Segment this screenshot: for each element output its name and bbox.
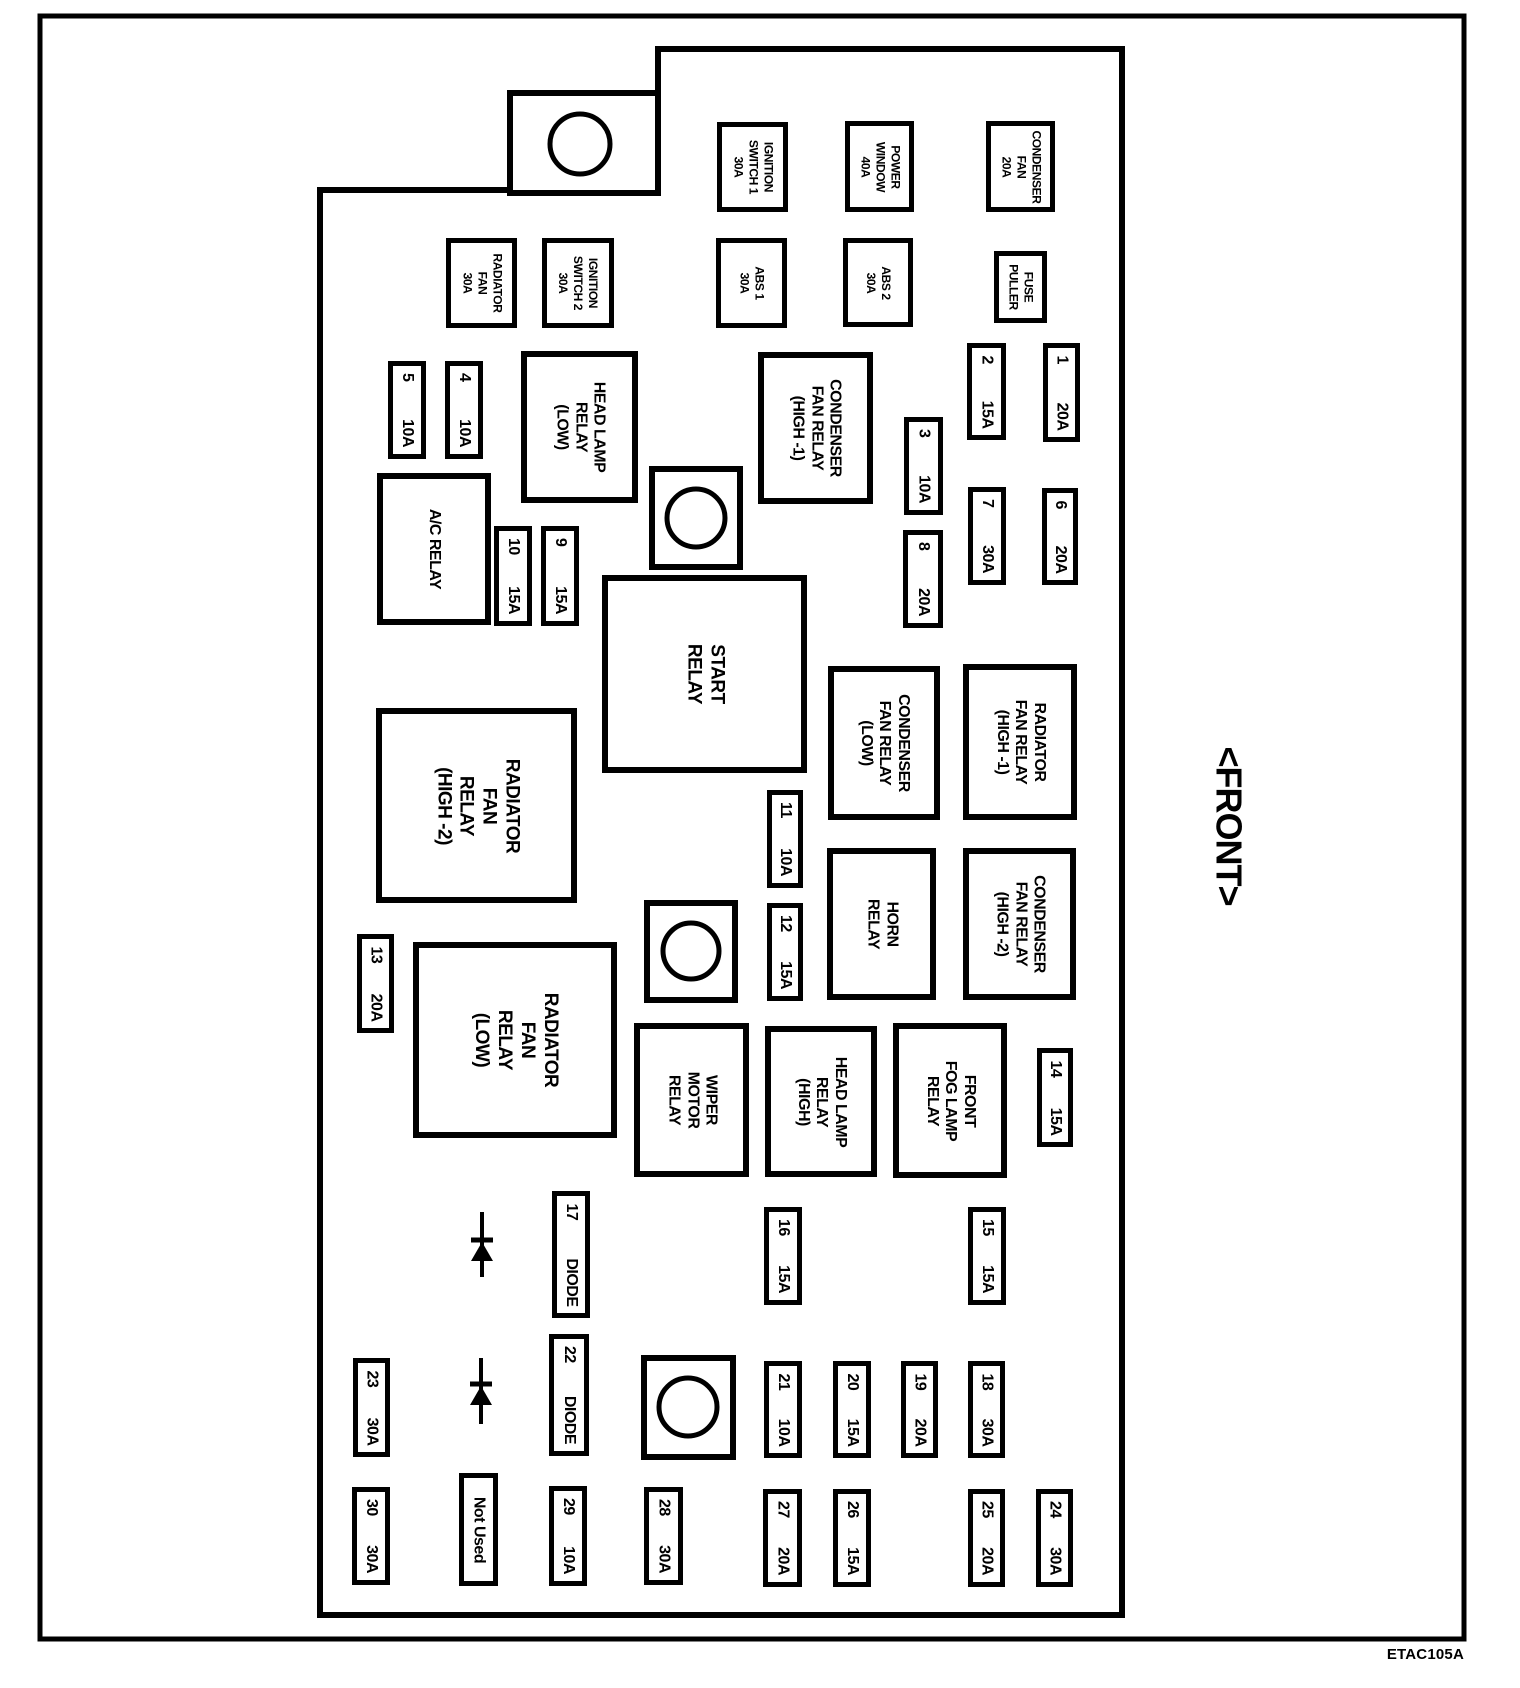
relay-label: (HIGH -2) xyxy=(992,892,1010,957)
fuse-label: 23 xyxy=(363,1370,381,1387)
fuse-label: 12 xyxy=(776,915,794,932)
component-label: RADIATOR xyxy=(489,253,504,312)
fuse-label: 26 xyxy=(843,1501,861,1518)
relay-label: (HIGH -1) xyxy=(992,710,1010,775)
fuse-label: 29 xyxy=(559,1498,577,1515)
component-label: FAN xyxy=(474,272,489,295)
component-label: 20A xyxy=(998,156,1013,177)
fuse-label: 30A xyxy=(978,545,996,573)
fuse-label: 15A xyxy=(776,961,794,989)
fuse-label: 20 xyxy=(843,1373,861,1390)
fuse-26: 2615A xyxy=(833,1489,871,1587)
fuse-label: 5 xyxy=(398,373,416,381)
fuse-label: 15A xyxy=(843,1547,861,1575)
relay-label: RELAY xyxy=(492,1010,515,1070)
relay-label: RELAY xyxy=(922,1075,940,1125)
fuse-label: 22 xyxy=(560,1346,578,1363)
fuse-6: 620A xyxy=(1042,488,1078,585)
fuse-not-used: Not Used xyxy=(459,1473,498,1586)
fuse-label: 15A xyxy=(774,1265,792,1293)
fuse-label: 15 xyxy=(978,1219,996,1236)
fuse-label: 10A xyxy=(776,848,794,876)
fuse-16: 1615A xyxy=(764,1207,802,1305)
fuse-label: 15A xyxy=(551,586,569,614)
fuse-4: 410A xyxy=(445,361,483,459)
fuse-label: 15A xyxy=(504,586,522,614)
component-abs-1: ABS 130A xyxy=(716,238,787,328)
fuse-label: 20A xyxy=(1051,545,1069,573)
fuse-label: 20A xyxy=(1053,402,1071,430)
relay-label: HEAD LAMP xyxy=(830,1056,848,1147)
relay-label: WIPER xyxy=(701,1075,719,1125)
relay-label: HEAD LAMP xyxy=(589,382,607,473)
relay-label: FAN xyxy=(515,1022,538,1059)
fuse-label: 19 xyxy=(911,1373,929,1390)
component-ignition-switch-1: IGNITIONSWITCH 130A xyxy=(717,122,788,212)
fuse-label: 25 xyxy=(978,1501,996,1518)
fuse-label: 15A xyxy=(843,1418,861,1446)
fuse-label: 30A xyxy=(1046,1547,1064,1575)
fuse-label: 28 xyxy=(655,1499,673,1516)
relay-label: RADIATOR xyxy=(538,993,561,1088)
component-power-window: POWERWINDOW40A xyxy=(845,121,914,212)
relay-head-lamp-relay-low: HEAD LAMPRELAY(LOW) xyxy=(521,351,638,503)
component-label: 30A xyxy=(863,272,878,293)
fuse-12: 1215A xyxy=(767,903,803,1001)
front-label-text: <FRONT> xyxy=(1208,746,1250,905)
fuse-13: 1320A xyxy=(357,934,394,1033)
fuse-9: 915A xyxy=(541,526,579,626)
relay-label: FRONT xyxy=(959,1074,977,1127)
fuse-label: 30A xyxy=(363,1417,381,1445)
relay-label: (HIGH) xyxy=(793,1078,811,1126)
fuse-8: 820A xyxy=(903,530,943,628)
relay-label: CONDENSER xyxy=(893,694,911,792)
fuse-2: 215A xyxy=(967,343,1006,440)
fuse-label: 4 xyxy=(455,373,473,381)
fuse-30: 3030A xyxy=(352,1487,390,1585)
fuse-1: 120A xyxy=(1043,343,1080,442)
relay-horn-relay: HORNRELAY xyxy=(827,848,936,1000)
fuse-label: 20A xyxy=(911,1418,929,1446)
relay-radiator-fan-relay-high-2: RADIATORFANRELAY(HIGH -2) xyxy=(376,708,577,903)
relay-condenser-fan-relay-high-2: CONDENSERFAN RELAY(HIGH -2) xyxy=(963,848,1076,1000)
component-label: IGNITION xyxy=(586,258,601,308)
fuse-22: 22DIODE xyxy=(549,1334,589,1456)
fuse-27: 2720A xyxy=(763,1489,802,1587)
fuse-label: 10A xyxy=(455,419,473,447)
fuse-label: 30 xyxy=(362,1499,380,1516)
diode-symbol-2 xyxy=(470,1386,492,1405)
relay-label: CONDENSER xyxy=(1029,875,1047,973)
component-label: PULLER xyxy=(1006,264,1021,310)
relay-label: (LOW) xyxy=(856,720,874,765)
component-label: POWER xyxy=(887,145,902,188)
fuse-label: DIODE xyxy=(560,1396,578,1444)
relay-condenser-fan-relay-high-1: CONDENSERFAN RELAY(HIGH -1) xyxy=(758,352,873,504)
component-label: FAN xyxy=(1013,155,1028,178)
diode-symbol-1 xyxy=(471,1242,493,1261)
fuse-label: 8 xyxy=(914,542,932,550)
figure-code: ETAC105A xyxy=(1320,1646,1464,1663)
fuse-label: 3 xyxy=(915,429,933,437)
component-ignition-switch-2: IGNITIONSWITCH 230A xyxy=(542,238,614,328)
fuse-label: 6 xyxy=(1051,500,1069,508)
relay-start-relay: STARTRELAY xyxy=(602,575,807,773)
mounting-tab-hole-frame xyxy=(510,93,658,193)
relay-label: FAN RELAY xyxy=(1010,882,1028,967)
component-label: ABS 2 xyxy=(878,266,893,299)
component-abs-2: ABS 230A xyxy=(843,238,913,327)
relay-label: FAN xyxy=(477,787,500,824)
component-label: FUSE xyxy=(1021,272,1036,302)
component-label: 30A xyxy=(556,273,571,294)
relay-label: RELAY xyxy=(664,1075,682,1125)
fuse-17: 17DIODE xyxy=(552,1191,590,1318)
relay-label: (LOW) xyxy=(469,1013,492,1067)
relay-label: MOTOR xyxy=(682,1072,700,1129)
component-label: SWITCH 2 xyxy=(571,256,586,310)
component-label: 40A xyxy=(857,156,872,177)
component-label: CONDENSER xyxy=(1028,130,1043,203)
relay-label: RADIATOR xyxy=(499,758,522,853)
fuse-label: DIODE xyxy=(562,1258,580,1306)
fuse-label: 11 xyxy=(776,802,794,818)
relay-radiator-fan-relay-low: RADIATORFANRELAY(LOW) xyxy=(413,942,617,1138)
relay-label: FOG LAMP xyxy=(941,1060,959,1140)
fuse-label: 14 xyxy=(1046,1060,1064,1077)
fuse-label: 10A xyxy=(915,475,933,503)
fuse-label: 10A xyxy=(398,419,416,447)
fuse-7: 730A xyxy=(968,487,1006,585)
fuse-29: 2910A xyxy=(549,1486,587,1586)
fuse-label: 10A xyxy=(774,1418,792,1446)
relay-label: FAN RELAY xyxy=(806,386,824,471)
fuse-24: 2430A xyxy=(1036,1489,1073,1587)
fuse-label: 2 xyxy=(978,355,996,363)
fuse-label: 27 xyxy=(774,1501,792,1518)
fuse-label: 15A xyxy=(978,1265,996,1293)
relay-condenser-fan-relay-low: CONDENSERFAN RELAY(LOW) xyxy=(828,666,940,820)
relay-label: HORN xyxy=(882,901,900,946)
component-radiator-fan: RADIATORFAN30A xyxy=(446,238,517,328)
fuse-label: 7 xyxy=(978,499,996,507)
fuse-11: 1110A xyxy=(767,790,803,888)
relay-label: CONDENSER xyxy=(825,379,843,477)
fuse-label: 15A xyxy=(978,400,996,428)
component-label: 30A xyxy=(459,273,474,294)
component-fuse-puller: FUSEPULLER xyxy=(994,251,1047,323)
mounting-hole-2-frame xyxy=(647,903,735,1000)
fuse-18: 1830A xyxy=(968,1361,1005,1458)
fuse-3: 310A xyxy=(904,417,943,515)
fuse-14: 1415A xyxy=(1037,1048,1073,1147)
fuse-box-diagram-page: IGNITIONSWITCH 130APOWERWINDOW40ACONDENS… xyxy=(0,0,1520,1688)
fuse-19: 1920A xyxy=(901,1361,938,1458)
fuse-label: 20A xyxy=(914,588,932,616)
component-label: SWITCH 1 xyxy=(745,140,760,194)
relay-radiator-fan-relay-high-1: RADIATORFAN RELAY(HIGH -1) xyxy=(963,664,1077,820)
fuse-25: 2520A xyxy=(968,1489,1005,1587)
relay-label: FAN RELAY xyxy=(1011,700,1029,785)
fuse-label: 10 xyxy=(504,538,522,555)
fuse-28: 2830A xyxy=(644,1487,683,1585)
fuse-10: 1015A xyxy=(494,526,532,626)
component-label: 30A xyxy=(730,157,745,178)
component-label: 30A xyxy=(737,273,752,294)
relay-label: RELAY xyxy=(454,775,477,835)
relay-label: (HIGH -2) xyxy=(431,767,454,845)
component-label: WINDOW xyxy=(872,141,887,191)
fuse-21: 2110A xyxy=(764,1361,802,1458)
fuse-23: 2330A xyxy=(353,1358,390,1457)
fuse-label: 20A xyxy=(367,993,385,1021)
relay-label: (LOW) xyxy=(552,404,570,449)
fuse-label: 21 xyxy=(774,1373,792,1390)
fuse-label: 18 xyxy=(978,1373,996,1390)
fuse-label: 30A xyxy=(978,1418,996,1446)
fuse-20: 2015A xyxy=(833,1361,871,1458)
relay-label: RELAY xyxy=(682,644,705,704)
fuse-label: 1 xyxy=(1053,355,1071,363)
fuse-label: 20A xyxy=(774,1547,792,1575)
relay-label: RELAY xyxy=(570,402,588,452)
relay-label: A/C RELAY xyxy=(425,509,443,589)
front-direction-label: <FRONT> xyxy=(1199,731,1259,921)
fuse-15: 1515A xyxy=(968,1207,1006,1305)
relay-ac-relay: A/C RELAY xyxy=(377,473,491,625)
relay-label: FAN RELAY xyxy=(875,701,893,786)
component-label: IGNITION xyxy=(760,142,775,192)
component-label: ABS 1 xyxy=(752,266,767,299)
fuse-label: 24 xyxy=(1046,1501,1064,1518)
fuse-label: Not Used xyxy=(470,1496,488,1562)
fuse-label: 16 xyxy=(774,1219,792,1236)
relay-label: RELAY xyxy=(863,899,881,949)
fuse-label: 13 xyxy=(367,946,385,963)
relay-wiper-motor-relay: WIPERMOTORRELAY xyxy=(634,1023,749,1177)
fuse-label: 10A xyxy=(559,1546,577,1574)
relay-label: RADIATOR xyxy=(1029,703,1047,782)
fuse-label: 9 xyxy=(551,538,569,546)
component-condenser-fan: CONDENSERFAN20A xyxy=(986,121,1055,212)
fuse-label: 30A xyxy=(362,1545,380,1573)
relay-label: RELAY xyxy=(812,1076,830,1126)
relay-label: START xyxy=(705,644,728,703)
relay-label: (HIGH -1) xyxy=(788,396,806,461)
relay-front-fog-lamp-relay: FRONTFOG LAMPRELAY xyxy=(893,1023,1007,1178)
fuse-label: 20A xyxy=(978,1547,996,1575)
fuse-5: 510A xyxy=(388,361,426,459)
fuse-label: 17 xyxy=(562,1203,580,1220)
relay-head-lamp-relay-high: HEAD LAMPRELAY(HIGH) xyxy=(765,1026,877,1177)
fuse-label: 30A xyxy=(655,1545,673,1573)
fuse-label: 15A xyxy=(1046,1107,1064,1135)
